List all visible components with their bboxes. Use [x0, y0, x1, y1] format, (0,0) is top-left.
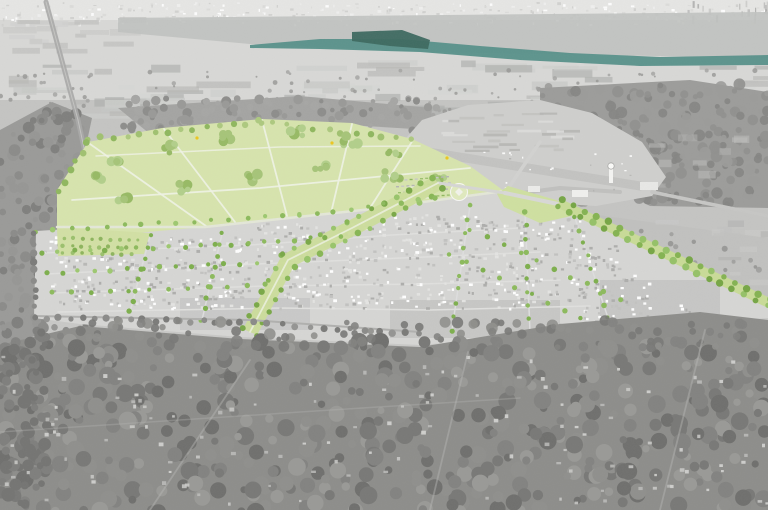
aerial-photo-canvas — [0, 0, 768, 510]
masterplan-aerial-view — [0, 0, 768, 510]
photo-grain — [0, 0, 768, 510]
